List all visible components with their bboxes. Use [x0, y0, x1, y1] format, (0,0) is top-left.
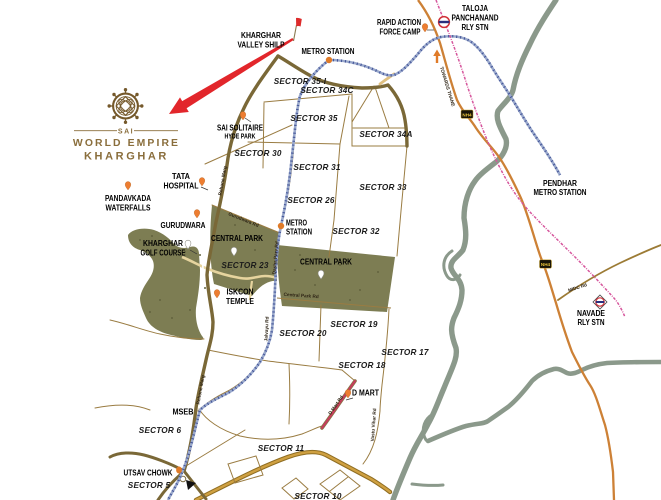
- svg-text:SECTOR 33: SECTOR 33: [359, 183, 406, 192]
- svg-text:HYDE PARK: HYDE PARK: [225, 132, 256, 141]
- svg-text:CENTRAL PARK: CENTRAL PARK: [211, 234, 263, 243]
- svg-text:SECTOR 18: SECTOR 18: [338, 361, 385, 370]
- svg-text:SAI: SAI: [118, 129, 134, 136]
- svg-text:SECTOR 6: SECTOR 6: [139, 426, 182, 435]
- svg-text:FORCE CAMP: FORCE CAMP: [380, 28, 422, 37]
- svg-text:PANCHANAND: PANCHANAND: [452, 14, 499, 23]
- svg-text:SECTOR 19: SECTOR 19: [330, 320, 377, 329]
- svg-text:RAPID ACTION: RAPID ACTION: [377, 18, 421, 27]
- svg-text:MSEB: MSEB: [173, 408, 194, 417]
- svg-text:SECTOR 30: SECTOR 30: [234, 149, 281, 158]
- svg-text:GURUDWARA: GURUDWARA: [161, 221, 206, 230]
- svg-text:PENDHAR: PENDHAR: [543, 179, 577, 188]
- svg-text:METRO STATION: METRO STATION: [302, 47, 355, 56]
- svg-text:METRO: METRO: [286, 219, 307, 228]
- svg-text:SECTOR 34A: SECTOR 34A: [359, 130, 412, 139]
- svg-text:RLY STN: RLY STN: [462, 23, 489, 32]
- svg-text:SECTOR 32: SECTOR 32: [332, 227, 379, 236]
- svg-text:METRO STATION: METRO STATION: [534, 188, 587, 197]
- svg-text:ISKCON: ISKCON: [227, 288, 254, 297]
- svg-text:SECTOR 17: SECTOR 17: [381, 348, 428, 357]
- svg-text:KHARGHAR: KHARGHAR: [241, 31, 281, 40]
- svg-text:SECTOR 31: SECTOR 31: [293, 163, 340, 172]
- svg-text:SECTOR 26: SECTOR 26: [287, 196, 334, 205]
- svg-text:VALLEY SHILP: VALLEY SHILP: [238, 41, 286, 50]
- svg-text:SECTOR 34C: SECTOR 34C: [300, 86, 354, 95]
- svg-text:SECTOR 23: SECTOR 23: [221, 261, 268, 270]
- svg-text:NAVADE: NAVADE: [577, 309, 606, 318]
- svg-text:WATERFALLS: WATERFALLS: [106, 204, 152, 213]
- svg-text:TATA: TATA: [172, 172, 190, 181]
- svg-text:SECTOR 35: SECTOR 35: [290, 114, 337, 123]
- svg-text:NH4: NH4: [462, 112, 472, 117]
- svg-text:HOSPITAL: HOSPITAL: [164, 182, 199, 191]
- svg-text:D MART: D MART: [352, 389, 379, 398]
- svg-text:GOLF COURSE: GOLF COURSE: [141, 249, 187, 258]
- svg-text:CENTRAL PARK: CENTRAL PARK: [300, 258, 352, 267]
- svg-text:UTSAV CHOWK: UTSAV CHOWK: [124, 469, 173, 478]
- svg-text:STATION: STATION: [286, 228, 312, 237]
- svg-text:NH4: NH4: [541, 262, 551, 267]
- svg-text:KHARGHAR: KHARGHAR: [84, 150, 169, 162]
- svg-text:TALOJA: TALOJA: [462, 4, 488, 13]
- svg-text:SECTOR 5: SECTOR 5: [128, 481, 171, 490]
- svg-text:PANDAVKADA: PANDAVKADA: [105, 194, 151, 203]
- svg-text:SECTOR 10: SECTOR 10: [294, 492, 341, 500]
- svg-text:SECTOR 35-I: SECTOR 35-I: [274, 77, 327, 86]
- svg-text:RLY STN: RLY STN: [578, 318, 605, 327]
- svg-text:SECTOR 11: SECTOR 11: [258, 444, 305, 453]
- svg-text:WORLD EMPIRE: WORLD EMPIRE: [73, 138, 180, 149]
- svg-text:TEMPLE: TEMPLE: [226, 297, 255, 306]
- svg-text:KHARGHAR: KHARGHAR: [143, 239, 183, 248]
- svg-text:SECTOR 20: SECTOR 20: [279, 329, 326, 338]
